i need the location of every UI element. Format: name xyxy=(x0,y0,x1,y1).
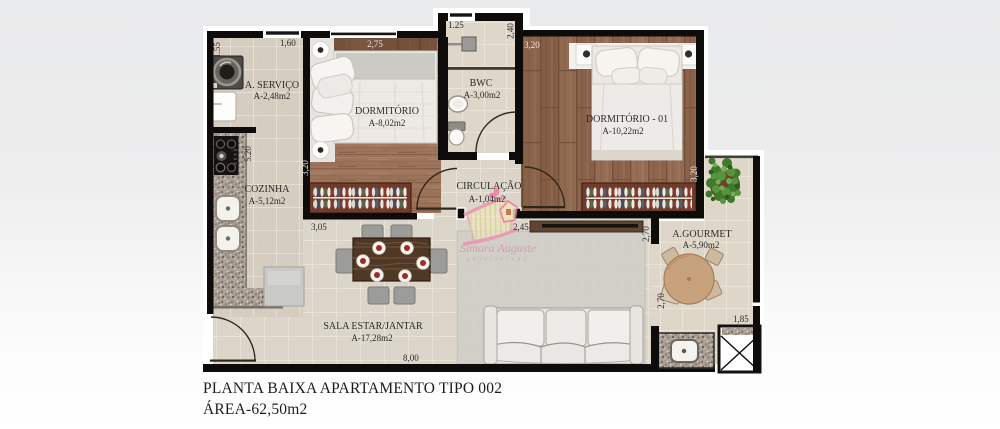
svg-text:2,45: 2,45 xyxy=(513,222,529,232)
svg-text:3,05: 3,05 xyxy=(311,222,327,232)
svg-text:A.GOURMET: A.GOURMET xyxy=(672,229,731,240)
svg-text:8,00: 8,00 xyxy=(403,353,419,363)
svg-text:PLANTA BAIXA APARTAMENTO TIPO: PLANTA BAIXA APARTAMENTO TIPO 002 xyxy=(203,380,502,397)
svg-text:A-8,02m2: A-8,02m2 xyxy=(369,118,406,128)
svg-text:1,60: 1,60 xyxy=(280,38,296,48)
svg-text:A. SERVIÇO: A. SERVIÇO xyxy=(245,80,299,91)
svg-text:1.25: 1.25 xyxy=(448,20,464,30)
svg-text:2,40: 2,40 xyxy=(506,23,516,39)
svg-text:A-1,04m2: A-1,04m2 xyxy=(469,194,506,204)
svg-text:3,20: 3,20 xyxy=(300,160,310,176)
svg-text:3,20: 3,20 xyxy=(524,40,540,50)
svg-text:1,85: 1,85 xyxy=(733,314,749,324)
svg-text:BWC: BWC xyxy=(470,78,493,89)
svg-text:Simara Auguste: Simara Auguste xyxy=(460,241,537,255)
svg-text:2,75: 2,75 xyxy=(367,39,383,49)
svg-text:DORMITÓRIO - 01: DORMITÓRIO - 01 xyxy=(586,113,668,125)
svg-text:A-5,90m2: A-5,90m2 xyxy=(683,240,720,250)
svg-text:ÁREA-62,50m2: ÁREA-62,50m2 xyxy=(203,401,307,418)
svg-text:5.20: 5.20 xyxy=(243,146,253,162)
svg-text:COZINHA: COZINHA xyxy=(245,184,291,195)
svg-text:A-5,12m2: A-5,12m2 xyxy=(249,196,286,206)
svg-text:2,70: 2,70 xyxy=(641,226,651,242)
svg-text:1.55: 1.55 xyxy=(212,42,222,58)
svg-text:A-10,22m2: A-10,22m2 xyxy=(602,126,643,136)
svg-text:CIRCULAÇÃO: CIRCULAÇÃO xyxy=(456,180,521,192)
svg-text:DORMITÓRIO: DORMITÓRIO xyxy=(355,105,419,117)
svg-text:3,20: 3,20 xyxy=(689,166,699,182)
svg-text:A-3,00m2: A-3,00m2 xyxy=(464,90,501,100)
svg-text:2,70: 2,70 xyxy=(656,293,666,309)
svg-text:A R Q U I T E T U R A: A R Q U I T E T U R A xyxy=(467,257,527,262)
svg-text:A-2,48m2: A-2,48m2 xyxy=(254,91,291,101)
svg-text:SALA ESTAR/JANTAR: SALA ESTAR/JANTAR xyxy=(323,321,423,332)
svg-text:A-17,28m2: A-17,28m2 xyxy=(351,333,392,343)
